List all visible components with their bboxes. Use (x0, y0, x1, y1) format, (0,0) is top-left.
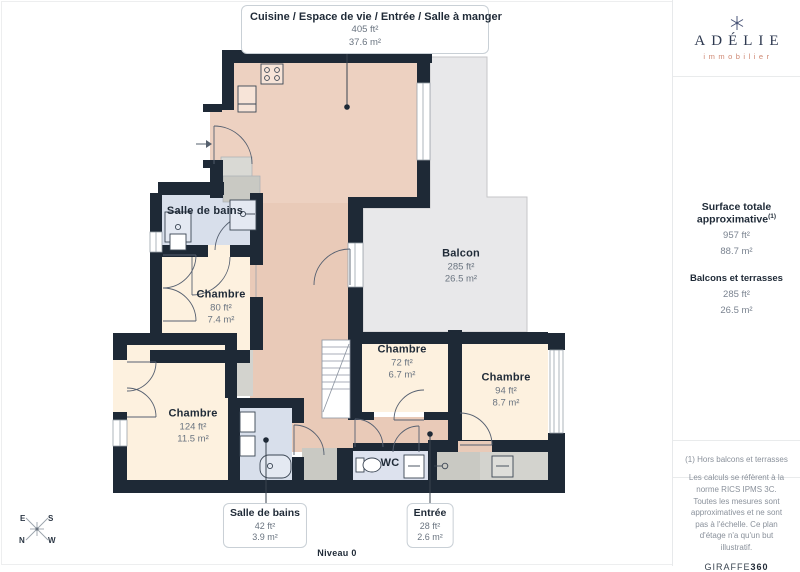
room-label-salle-de-bains-upper: Salle de bains (167, 205, 243, 219)
brand-name: ADÉLIE (694, 33, 784, 50)
main-area-title: Cuisine / Espace de vie / Entrée / Salle… (250, 10, 480, 24)
floor-plan: Cuisine / Espace de vie / Entrée / Salle… (0, 0, 672, 566)
room-label-chambre-72: Chambre 72 ft² 6.7 m² (377, 343, 426, 381)
door-gap (458, 441, 492, 452)
main-area-ft: 405 ft² (250, 24, 480, 36)
room-label-chambre-94: Chambre 94 ft² 8.7 m² (481, 371, 530, 409)
floor-plan-drawing (0, 0, 672, 566)
room-label-wc: WC (381, 457, 400, 471)
room-label-chambre-80: Chambre 80 ft² 7.4 m² (196, 288, 245, 326)
surface-m: 88.7 m² (720, 246, 752, 257)
surface-footnote-marker: (1) (768, 213, 776, 220)
entry-arrow-icon (196, 140, 212, 148)
level-label: Niveau 0 (317, 548, 356, 558)
compass-north: N (19, 536, 25, 545)
balconies-title: Balcons et terrasses (690, 273, 783, 284)
floor-plan-page: { "plan": { "main_area": { "title": "Cui… (0, 0, 800, 566)
giraffe360-watermark: GIRAFFE360 (704, 562, 768, 572)
room-label-chambre-124: Chambre 124 ft² 11.5 m² (168, 407, 217, 445)
main-area-m: 37.6 m² (250, 37, 480, 49)
entree-callout: Entrée 28 ft² 2.6 m² (407, 503, 454, 548)
surface-title: Surface totale approximative(1) (673, 201, 800, 226)
compass-west: W (48, 536, 56, 545)
surface-summary: Surface totale approximative(1) 957 ft² … (673, 77, 800, 440)
main-area-callout: Cuisine / Espace de vie / Entrée / Salle… (241, 5, 489, 54)
brand-tagline: immobilier (703, 52, 772, 61)
surface-ft: 957 ft² (723, 230, 750, 241)
brand-logo: ADÉLIE immobilier (673, 0, 800, 77)
compass-east: E (20, 514, 25, 523)
compass-icon (26, 518, 48, 540)
legal-text: Les calculs se réfèrent à la norme RICS … (684, 472, 789, 553)
balconies-ft: 285 ft² (723, 289, 750, 300)
legal-section: Les calculs se réfèrent à la norme RICS … (673, 478, 800, 566)
info-sidebar: ADÉLIE immobilier Surface totale approxi… (672, 0, 800, 566)
compass-south: S (48, 514, 53, 523)
stairs (322, 340, 350, 418)
snowflake-icon (729, 15, 745, 31)
bath-lower-callout: Salle de bains 42 ft² 3.9 m² (223, 503, 307, 548)
room-label-balcon: Balcon 285 ft² 26.5 m² (442, 247, 480, 285)
balconies-m: 26.5 m² (720, 305, 752, 316)
